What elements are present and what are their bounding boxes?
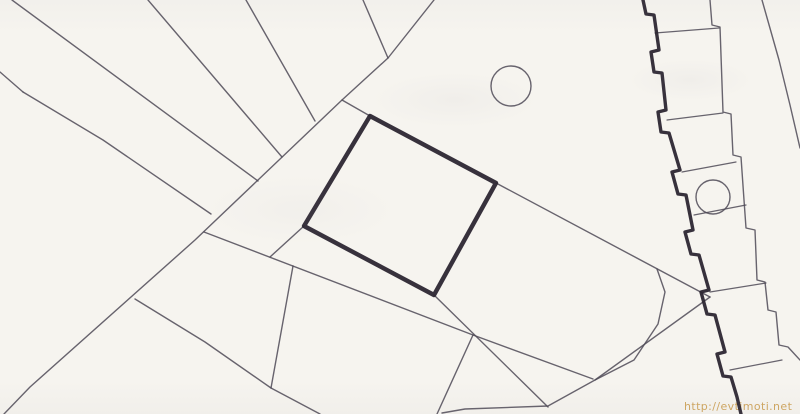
paper-background <box>0 0 800 414</box>
scanned-site-plan: http://evtimoti.net <box>0 0 800 414</box>
map-svg: http://evtimoti.net <box>0 0 800 414</box>
